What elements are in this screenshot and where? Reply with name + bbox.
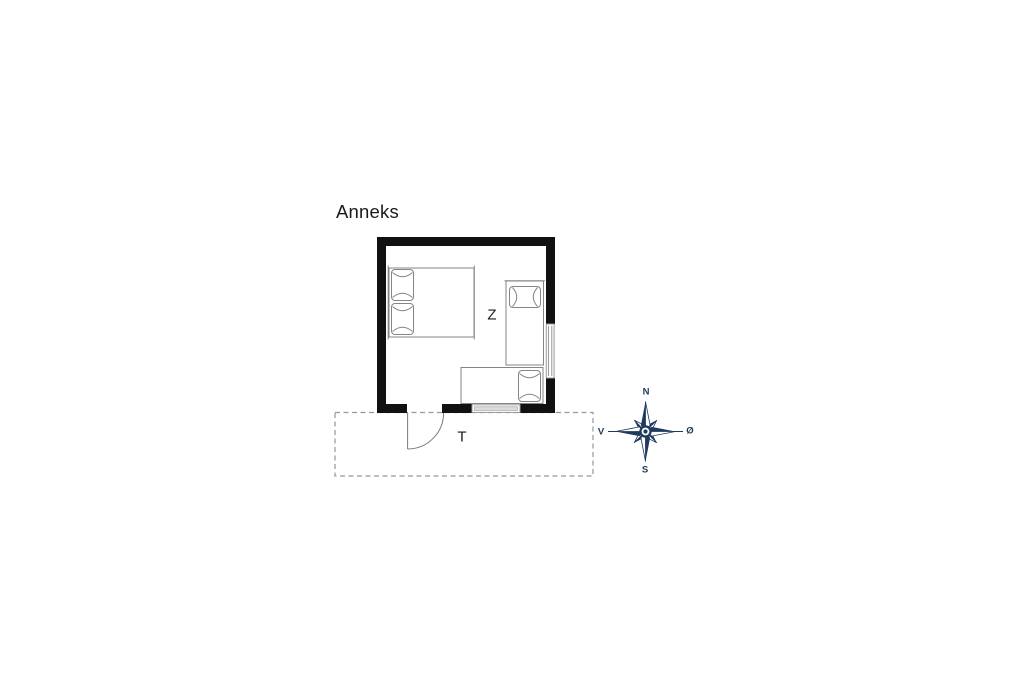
double-bed-icon (388, 266, 474, 340)
bench-bed-icon (461, 368, 543, 404)
terrace-outline (335, 413, 593, 477)
floorplan-canvas: Anneks Z T N S V Ø (0, 0, 1024, 682)
window-bottom-icon (472, 405, 520, 413)
compass-rose-icon (608, 402, 683, 462)
single-bed-icon (505, 281, 546, 365)
window-right-icon (546, 324, 554, 378)
floorplan-drawing (0, 0, 1024, 682)
door-swing-icon (408, 413, 444, 449)
